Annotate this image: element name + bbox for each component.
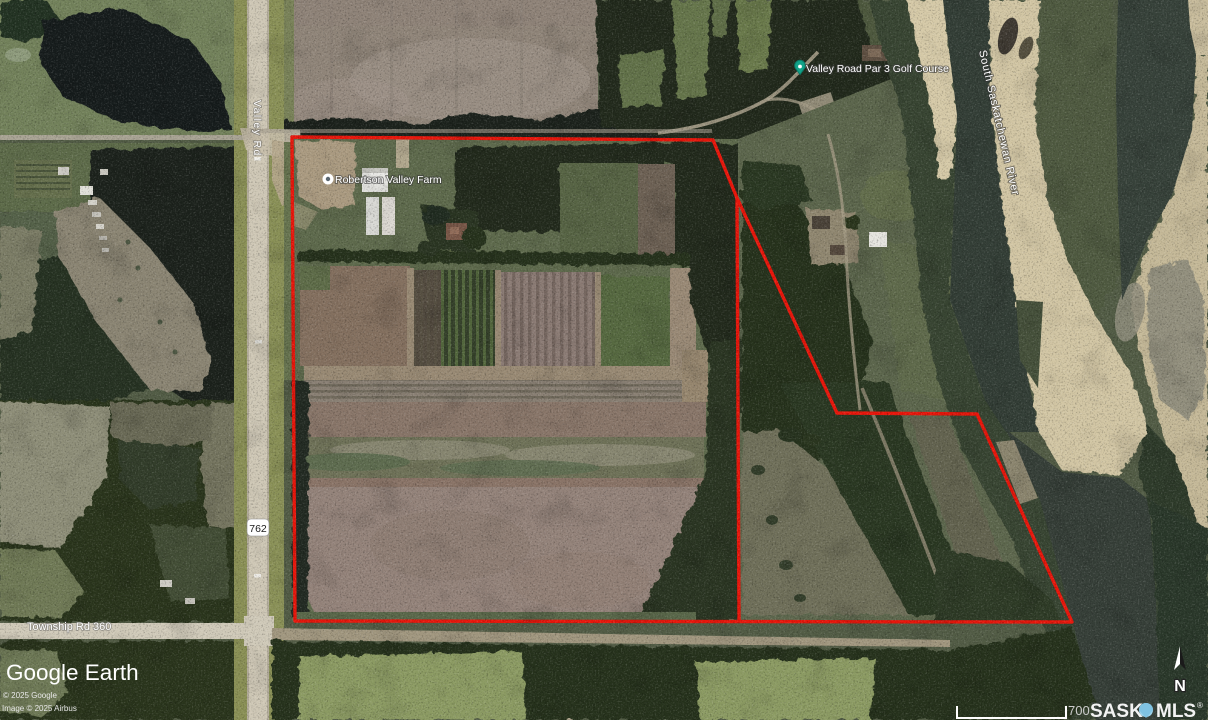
svg-text:Robertson Valley Farm: Robertson Valley Farm	[335, 174, 442, 186]
svg-text:762: 762	[249, 523, 267, 535]
svg-text:MLS: MLS	[1156, 701, 1196, 720]
svg-text:Valley Road Par 3 Golf Course: Valley Road Par 3 Golf Course	[806, 63, 949, 75]
svg-text:SASK: SASK	[1090, 701, 1143, 720]
svg-text:Township Rd 360: Township Rd 360	[27, 621, 111, 633]
svg-text:Google Earth: Google Earth	[6, 660, 139, 685]
svg-text:N: N	[1174, 678, 1186, 695]
svg-text:®: ®	[1197, 701, 1203, 710]
svg-text:Image © 2025 Airbus: Image © 2025 Airbus	[2, 704, 77, 713]
svg-text:700: 700	[1068, 703, 1090, 718]
svg-text:Valley Rd: Valley Rd	[251, 100, 263, 157]
svg-text:© 2025 Google: © 2025 Google	[3, 691, 57, 700]
